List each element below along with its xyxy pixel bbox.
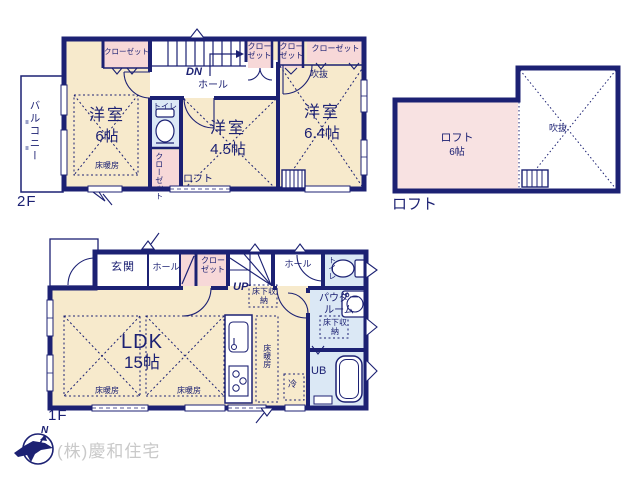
unit-bath-label: UB [311, 365, 326, 377]
loft-name-label: ロフト [425, 132, 489, 144]
toilet-2f-label: トイレ [150, 103, 180, 112]
void-2f-label: 吹抜 [310, 70, 328, 80]
company-watermark: (株)慶和住宅 [57, 443, 160, 462]
loft-plan [395, 68, 618, 191]
ldk-heating1-label: 床暖房 [84, 387, 130, 396]
toilet-1f-label: トイレ [327, 256, 336, 286]
floor-plan-page: 2F バルコニー クローゼット クローゼット クローゼット クローゼット DN … [0, 0, 640, 480]
ldk-size-label: 15帖 [110, 354, 174, 373]
ldk-heating2-label: 床暖房 [166, 387, 212, 396]
balcony-label: バルコニー [28, 100, 40, 190]
vent-right-2 [366, 318, 377, 336]
stairs-down-label: DN [186, 66, 202, 78]
compass-north-label: N [41, 425, 48, 436]
loft-ladder-2f [282, 170, 305, 188]
closet-2f-1-label: クローゼット [103, 48, 150, 56]
closet-1f-label: クローゼット [198, 256, 228, 274]
closet-2f-4-label: クローゼット [307, 45, 364, 54]
entrance-label: 玄関 [99, 261, 147, 273]
underfloor-storage-label: 床下収納 [251, 287, 277, 305]
underfloor-storage2-label: 床下収納 [322, 318, 348, 336]
loft-plan-label: ロフト [392, 197, 437, 214]
vent-right-3 [366, 360, 377, 382]
room1-heating-label: 床暖房 [86, 162, 128, 171]
entrance-porch [50, 239, 98, 286]
closet-2f-3-label: クローゼット [279, 42, 304, 60]
powder-room-label: パウダールーム [316, 293, 362, 316]
room2-size-label: 4.5帖 [195, 142, 261, 159]
room2-name-label: 洋室 [198, 120, 258, 138]
kitchen-counter [225, 315, 252, 403]
closet-2f-5-label: クローゼット [154, 152, 163, 189]
toilet-icon-1f [332, 260, 365, 277]
loft-access-label: ロフト [183, 174, 213, 185]
toilet-icon-2f [156, 109, 174, 143]
floor2-label: 2F [17, 194, 37, 211]
room3-size-label: 6.4帖 [289, 126, 355, 143]
stairs-up-label: UP [233, 281, 248, 293]
faucet-icon [232, 345, 237, 350]
loft-ladder [522, 170, 548, 187]
loft-room [397, 102, 518, 189]
ldk-name-label: LDK [110, 331, 174, 353]
ldk-heating3-label: 床暖房 [262, 344, 271, 384]
room1-name-label: 洋室 [77, 107, 137, 125]
room3-name-label: 洋室 [292, 104, 352, 122]
bath-step [314, 396, 332, 404]
fridge-space-label: 冷 [288, 380, 297, 390]
void-loft-label: 吹抜 [549, 124, 567, 134]
vent-right-1 [366, 262, 377, 278]
hall-front-label: ホール [145, 263, 187, 273]
hall-2f-label: ホール [198, 80, 228, 91]
floor1-label: 1F [48, 408, 68, 425]
closet-2f-2-label: クローゼット [246, 42, 273, 60]
compass-north-icon [14, 434, 53, 464]
room1-size-label: 6帖 [77, 129, 137, 146]
hall-back-label: ホール [276, 260, 320, 270]
loft-size-label: 6帖 [425, 147, 489, 158]
